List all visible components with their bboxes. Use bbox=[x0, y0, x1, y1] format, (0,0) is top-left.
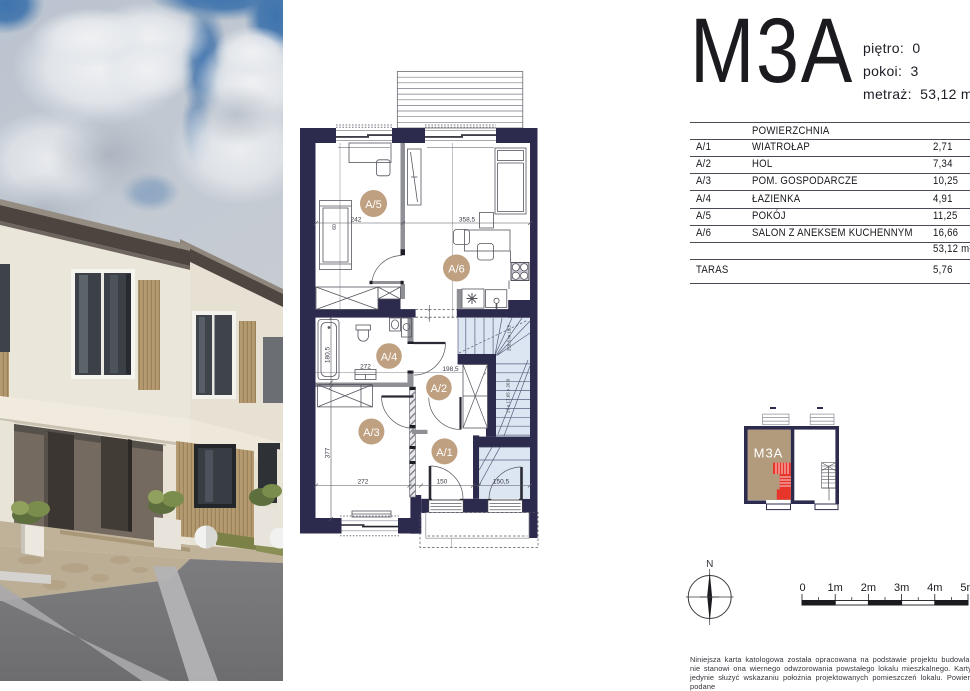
svg-text:150: 150 bbox=[437, 479, 448, 486]
svg-text:A/5: A/5 bbox=[365, 199, 382, 211]
svg-text:150,5: 150,5 bbox=[493, 479, 510, 486]
svg-text:N: N bbox=[706, 559, 713, 570]
svg-text:358,5: 358,5 bbox=[459, 217, 476, 224]
svg-text:A/3: A/3 bbox=[363, 427, 380, 439]
svg-text:A/1: A/1 bbox=[436, 447, 453, 459]
svg-text:M3A: M3A bbox=[754, 446, 784, 461]
svg-text:17 x 17,65 x 26,0: 17 x 17,65 x 26,0 bbox=[506, 378, 511, 413]
svg-text:5m: 5m bbox=[960, 582, 970, 594]
svg-text:60: 60 bbox=[332, 224, 338, 230]
svg-text:A/6: A/6 bbox=[448, 264, 465, 276]
svg-text:180,5: 180,5 bbox=[325, 346, 332, 363]
svg-text:0: 0 bbox=[799, 582, 805, 594]
svg-text:377: 377 bbox=[325, 447, 332, 458]
svg-text:258,5 m 18,5: 258,5 m 18,5 bbox=[507, 324, 512, 351]
svg-text:2m: 2m bbox=[861, 582, 876, 594]
svg-text:A/4: A/4 bbox=[381, 352, 398, 364]
svg-text:A/2: A/2 bbox=[431, 383, 448, 395]
svg-text:272: 272 bbox=[358, 479, 369, 486]
svg-text:242: 242 bbox=[351, 217, 362, 224]
svg-text:1m: 1m bbox=[828, 582, 843, 594]
svg-text:4m: 4m bbox=[927, 582, 942, 594]
svg-text:272: 272 bbox=[360, 364, 371, 371]
svg-text:198,5: 198,5 bbox=[442, 366, 459, 373]
svg-text:3m: 3m bbox=[894, 582, 909, 594]
